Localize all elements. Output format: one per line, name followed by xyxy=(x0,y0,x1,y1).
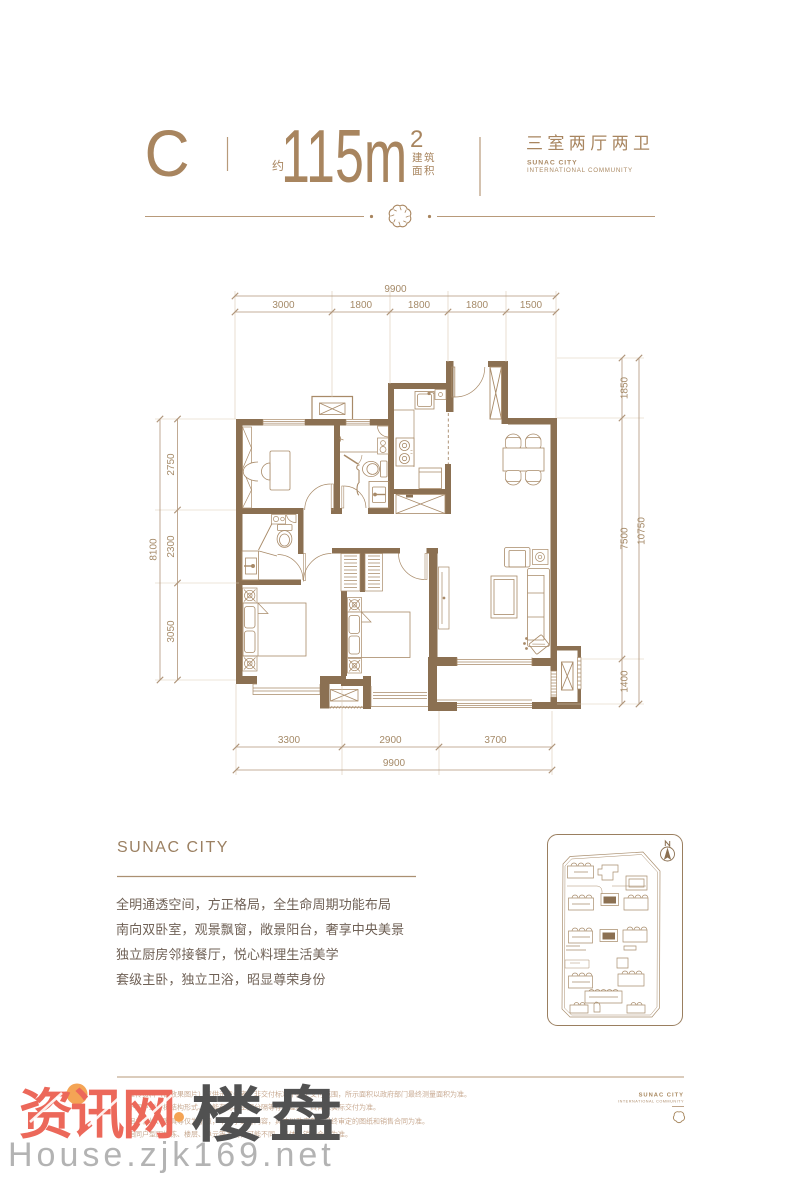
svg-text:SUNAC CITY: SUNAC CITY xyxy=(117,839,229,856)
svg-text:House.zjk169.net: House.zjk169.net xyxy=(8,1136,335,1174)
svg-text:独立厨房邻接餐厅，悦心料理生活美学: 独立厨房邻接餐厅，悦心料理生活美学 xyxy=(116,947,339,962)
svg-text:C: C xyxy=(145,116,190,190)
svg-text:三室两厅两卫: 三室两厅两卫 xyxy=(526,134,654,153)
svg-text:建筑: 建筑 xyxy=(412,151,436,164)
svg-text:2750: 2750 xyxy=(166,453,177,476)
svg-text:3300: 3300 xyxy=(278,735,301,746)
svg-text:1800: 1800 xyxy=(350,300,373,311)
svg-text:INTERNATIONAL COMMUNITY: INTERNATIONAL COMMUNITY xyxy=(618,1100,684,1104)
svg-text:3050: 3050 xyxy=(166,620,177,643)
svg-text:1800: 1800 xyxy=(466,300,489,311)
svg-text:2900: 2900 xyxy=(379,735,402,746)
svg-text:9900: 9900 xyxy=(383,758,406,769)
svg-text:南向双卧室，观景飘窗，敞景阳台，奢享中央美景: 南向双卧室，观景飘窗，敞景阳台，奢享中央美景 xyxy=(116,922,404,937)
svg-text:1400: 1400 xyxy=(620,670,631,693)
svg-text:115m: 115m xyxy=(281,113,407,198)
svg-text:2300: 2300 xyxy=(166,535,177,558)
svg-text:1800: 1800 xyxy=(408,300,431,311)
svg-text:INTERNATIONAL COMMUNITY: INTERNATIONAL COMMUNITY xyxy=(527,167,633,174)
svg-text:7500: 7500 xyxy=(620,527,631,550)
svg-text:8100: 8100 xyxy=(149,538,160,561)
svg-text:10750: 10750 xyxy=(637,517,648,545)
svg-text:3700: 3700 xyxy=(484,735,507,746)
svg-text:1500: 1500 xyxy=(520,300,543,311)
svg-text:2: 2 xyxy=(410,126,423,153)
svg-text:套级主卧，独立卫浴，昭显尊荣身份: 套级主卧，独立卫浴，昭显尊荣身份 xyxy=(116,972,326,987)
svg-text:SUNAC CITY: SUNAC CITY xyxy=(639,1093,684,1099)
svg-text:SUNAC CITY: SUNAC CITY xyxy=(527,160,578,167)
svg-text:全明通透空间，方正格局，全生命周期功能布局: 全明通透空间，方正格局，全生命周期功能布局 xyxy=(116,897,391,912)
svg-text:1850: 1850 xyxy=(620,376,631,399)
svg-text:9900: 9900 xyxy=(384,284,407,295)
svg-text:3000: 3000 xyxy=(272,300,295,311)
svg-text:面积: 面积 xyxy=(412,165,436,177)
